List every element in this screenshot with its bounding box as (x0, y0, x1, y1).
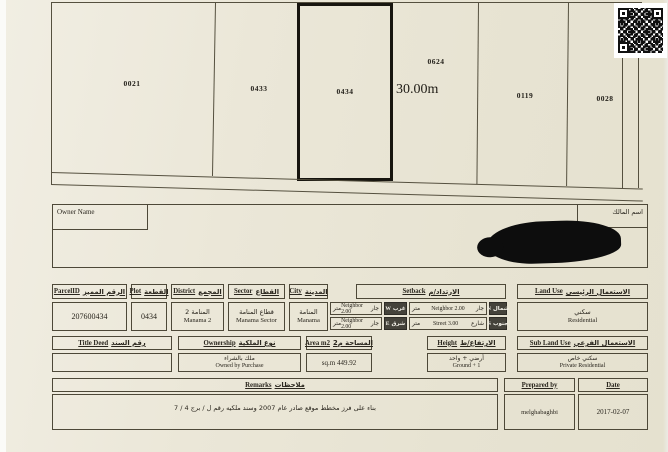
scanned-document-photo: 0021 0433 0434 0624 0119 0028 30.00m Own… (0, 0, 668, 452)
area-value: sq.m 449.92 (306, 353, 372, 372)
height-header: Heightالارتفاع/ط (427, 336, 506, 350)
parcel-id-header: ParcelIDالرقم المميز (52, 284, 127, 299)
title-deed-header: Title Deedرقم السند (52, 336, 172, 350)
height-value: أرضي + واحد Ground + 1 (427, 353, 506, 372)
dimension-label: 30.00m (396, 82, 438, 98)
plot-value: 0434 (131, 302, 167, 331)
ownership-header: Ownershipنوع الملكية (178, 336, 301, 350)
sub-land-use-value: سكني خاص Private Residential (517, 353, 648, 372)
date-header: Date (578, 378, 648, 392)
parcel-label-highlighted: 0434 (323, 87, 367, 96)
parcel-label: 0119 (503, 91, 547, 100)
setback-west-value: متر Neighbor 2.00 جار (330, 302, 382, 315)
map-left-boundary-line (51, 2, 52, 184)
sub-land-use-header: Sub Land Useالاستعمال الفرعي (517, 336, 648, 350)
remarks-value: بناء على فرز مخطط موقع صادر عام 2007 وسن… (52, 394, 498, 430)
setback-east-badge: E شرق (384, 317, 407, 330)
land-use-header: Land Useالاستعمال الرئيسي (517, 284, 648, 299)
district-value: المنامة 2 Manama 2 (171, 302, 224, 331)
boundary-line (212, 3, 216, 176)
qr-code (618, 8, 663, 53)
prepared-by-value: melghabaghbi (504, 394, 575, 430)
owner-name-label-arabic: اسم المالك (612, 208, 643, 216)
remarks-text: بناء على فرز مخطط موقع صادر عام 2007 وسن… (174, 404, 376, 412)
setback-header: Setbackالارتداد/م (356, 284, 506, 299)
boundary-line (566, 3, 569, 186)
parcel-label: 0433 (237, 84, 281, 93)
parcel-label: 0624 (414, 57, 458, 66)
city-value: المنامة Manama (289, 302, 328, 331)
land-use-value: سكني Residential (517, 302, 648, 331)
setback-west-badge: W غرب (384, 302, 407, 315)
owner-name-label-box: Owner Name (52, 204, 148, 230)
parcel-id-value: 207600434 (52, 302, 127, 331)
sector-header: Sectorالقطاع (228, 284, 285, 299)
setback-south-badge: S جنوب (489, 317, 507, 330)
date-value: 2017-02-07 (578, 394, 648, 430)
plot-header: Plotالقطعة (131, 284, 167, 299)
parcel-label: 0028 (583, 94, 627, 103)
ownership-value: ملك بالشراء Owned by Purchase (178, 353, 301, 372)
setback-north-value: متر Neighbor 2.00 جار (409, 302, 487, 315)
setback-east-value: متر Neighbor 2.00 جار (330, 317, 382, 330)
area-header: Area m2المساحة م2 (306, 336, 372, 350)
qr-code-patch (614, 3, 667, 58)
qr-finder-icon (652, 8, 663, 19)
city-header: Cityالمدينة (289, 284, 328, 299)
district-header: Districtالمجمع (171, 284, 224, 299)
boundary-line (476, 3, 479, 184)
remarks-header: Remarksملاحظات (52, 378, 498, 392)
title-deed-value (52, 353, 172, 372)
setback-south-value: متر Street 3.00 شارع (409, 317, 487, 330)
sector-value: قطاع المنامة Manama Sector (228, 302, 285, 331)
setback-north-badge: N شمال (489, 302, 507, 315)
prepared-by-header: Prepared by (504, 378, 575, 392)
qr-finder-icon (618, 42, 629, 53)
parcel-label: 0021 (110, 79, 154, 88)
qr-finder-icon (618, 8, 629, 19)
owner-name-label: Owner Name (57, 208, 95, 216)
